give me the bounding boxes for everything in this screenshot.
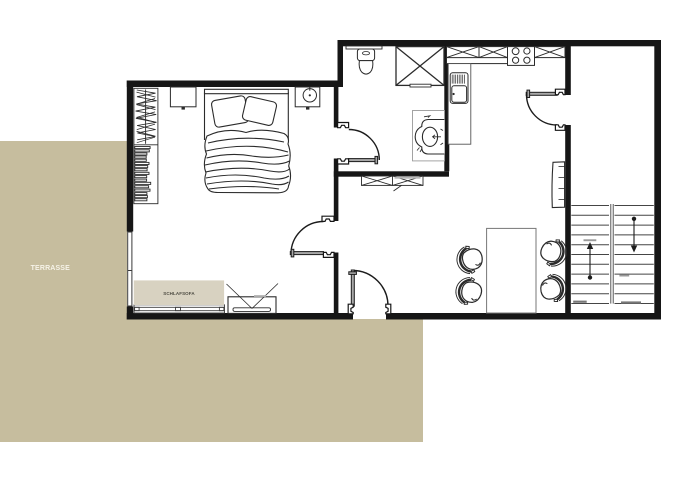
svg-text:TERRASSE: TERRASSE: [31, 265, 70, 272]
svg-text:SCHLAFSOFA: SCHLAFSOFA: [163, 291, 195, 296]
